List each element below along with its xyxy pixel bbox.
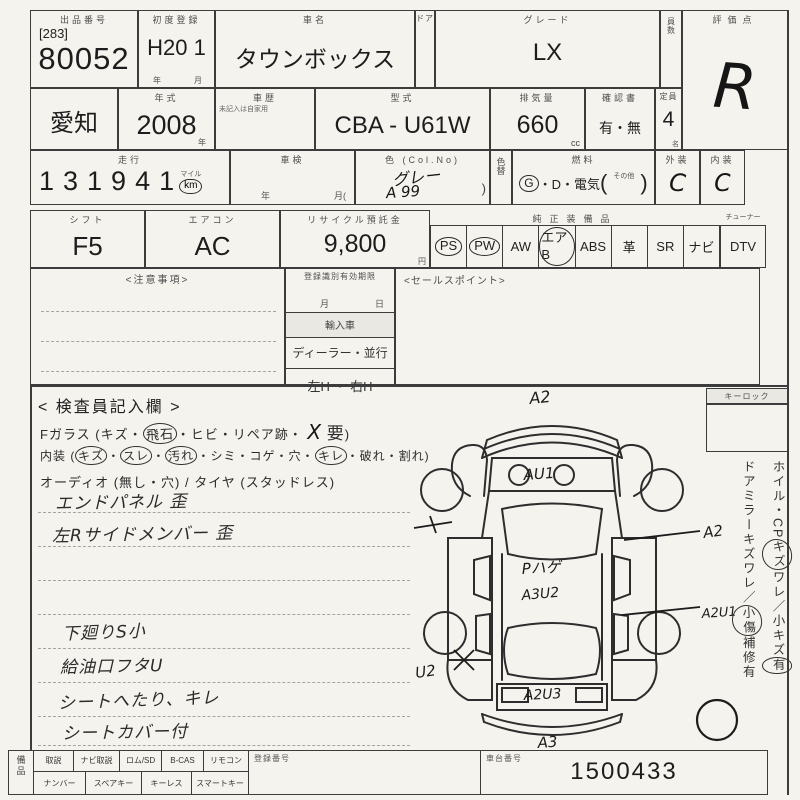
glass-required: 要	[327, 424, 345, 443]
fuel-options: ・D・電気	[539, 174, 600, 193]
sep: ・	[197, 449, 210, 463]
exterior-grade-box: 外装 C	[655, 150, 700, 205]
recycle-fee-unit: 円	[418, 256, 426, 267]
equip-navi-value: ナビ	[688, 237, 714, 256]
fuel-paren-open: (	[600, 170, 607, 196]
accessories-label: 備品	[15, 755, 28, 777]
tuner-value: DTV	[730, 239, 756, 254]
int-shimi: シミ	[210, 449, 236, 463]
model-code-box: 型式 CBA - U61W	[315, 88, 490, 150]
reg-month-unit: 月	[320, 297, 329, 310]
remark-wheel-text: ホイル・CP	[771, 460, 785, 539]
remark-mirror-text: ドアミラー	[741, 460, 755, 533]
sep: ・	[302, 449, 315, 463]
lot-bracket: [283]	[31, 26, 137, 41]
tuner-label: チューナー	[720, 210, 766, 222]
acc-smart-key-label: スマートキー	[196, 778, 244, 789]
glass-hand-x: X	[307, 420, 322, 444]
interior-grade-value: C	[701, 168, 745, 197]
model-year-box: 年式 2008 年	[118, 88, 215, 150]
mileage-unit-mile: マイル	[180, 169, 201, 179]
caution-notes-box: <注意事項>	[30, 268, 285, 385]
shaken-box: 車検 年 月(	[230, 150, 355, 205]
car-name-value: タウンボックス	[216, 40, 414, 74]
hand-marks	[414, 516, 737, 740]
keylock-empty-box	[706, 404, 788, 452]
sep: ・	[347, 449, 360, 463]
mark-left-rear-u2: U2	[414, 661, 437, 682]
right-remarks: ホイル・CPキズワレ／小キズ有 ドアミラーキズワレ／小傷補修有	[732, 460, 792, 752]
sales-point-box: <セールスポイント>	[395, 268, 760, 385]
firstreg-month-unit: 月	[194, 75, 202, 86]
remark-mirror: ドアミラーキズワレ／小傷補修有	[732, 460, 762, 752]
fuel-other-label: その他	[613, 171, 634, 181]
registration-id-label: 登録識別有効期限	[286, 269, 394, 282]
equipment-section: 純正装備品 PS PW AW エアB ABS 革 SR ナビ	[430, 210, 720, 268]
color-change-label: 色替	[495, 157, 508, 175]
capacity-unit: 名	[672, 139, 679, 149]
mark-right-front-a2: A2	[701, 521, 724, 542]
first-registration-value: H20 1	[139, 35, 214, 61]
aircon-value: AC	[146, 231, 279, 262]
first-registration-box: 初度登録 H20 1 年 月	[138, 10, 215, 88]
acc-keyless: キーレス	[142, 772, 192, 795]
lot-number-box: 出品番号 [283] 80052	[30, 10, 138, 88]
caution-notes-label: <注意事項>	[31, 269, 284, 286]
docs-label: 確認書	[586, 89, 654, 104]
recycle-fee-box: リサイクル預託金 9,800 円	[280, 210, 430, 268]
int-koge: コゲ	[249, 449, 275, 463]
equip-ps-value: PS	[435, 237, 462, 255]
remark-mirror-repair: 補修有	[741, 636, 755, 680]
color-box: 色 (Col.No) グレー A 99 )	[355, 150, 490, 205]
sep: ・	[107, 449, 120, 463]
grade-box: グレード LX	[435, 10, 660, 88]
acc-number-plate: ナンバー	[34, 772, 86, 795]
sep: ・	[236, 449, 249, 463]
acc-bcas: B-CAS	[162, 750, 204, 771]
equip-sr-value: SR	[656, 239, 674, 254]
aircon-box: エアコン AC	[145, 210, 280, 268]
shift-box: シフト F5	[30, 210, 145, 268]
equip-navi: ナビ	[684, 226, 719, 267]
tuner-section: チューナー DTV	[720, 210, 766, 268]
sep: ・	[275, 449, 288, 463]
equip-leather: 革	[612, 226, 648, 267]
glass-close: )	[345, 427, 350, 442]
prefecture-value: 愛知	[31, 103, 117, 138]
chassis-number-box: 車台番号 1500433	[480, 750, 768, 795]
door-box: ドア	[415, 10, 435, 88]
accessories-row-1: 取説 ナビ取説 ロム/SD B-CAS リモコン	[34, 750, 248, 772]
remark-wheel: ホイル・CPキズワレ／小キズ有	[762, 460, 792, 752]
docs-box: 確認書 有・無	[585, 88, 655, 150]
interior-grade-box: 内装 C	[700, 150, 745, 205]
registration-id-box: 登録識別有効期限 月 日 輸入車 ディーラー・並行 左H ・ 右H	[285, 268, 395, 385]
car-name-label: 車名	[216, 11, 414, 26]
displacement-value: 660	[491, 111, 584, 140]
mileage-value: 131941	[39, 166, 183, 197]
hand-note-endpanel: エンドパネル 歪	[55, 487, 188, 514]
qty-box: 員数	[660, 10, 682, 88]
fuel-box: 燃料 G・D・電気(その他)	[512, 150, 655, 205]
displacement-unit: cc	[571, 138, 580, 148]
registration-number-box: 登録番号	[248, 750, 480, 795]
exterior-grade-value: C	[655, 168, 699, 198]
glass-repair: リペア跡	[233, 427, 289, 442]
glass-prefix: Fガラス (	[40, 427, 101, 442]
int-yogore-circled: 汚れ	[165, 445, 198, 466]
score-value: R	[681, 46, 790, 126]
int-kire-circled: キレ	[314, 445, 347, 466]
sep: ・	[289, 427, 303, 442]
glass-line: Fガラス (キズ・飛石・ヒビ・リペア跡・ X 要)	[40, 419, 350, 444]
keylock-section: キーロック	[706, 388, 788, 452]
acc-navi-manual: ナビ取説	[74, 750, 120, 771]
import-car-label: 輸入車	[325, 321, 355, 332]
door-label: ドア	[416, 11, 434, 24]
equipment-label: 純正装備品	[430, 210, 720, 225]
sep: ・	[152, 449, 165, 463]
equip-airbag-value: エアB	[539, 227, 574, 266]
sep: ・	[177, 427, 191, 442]
acc-spare-key-label: スペアキー	[94, 778, 133, 789]
sep: ・	[219, 427, 233, 442]
shift-label: シフト	[31, 211, 144, 226]
grade-value: LX	[436, 39, 659, 67]
accessories-label-box: 備品	[8, 750, 34, 795]
displacement-box: 排気量 660 cc	[490, 88, 585, 150]
color-paren: )	[482, 181, 486, 196]
mileage-box: 走行 131941 マイル km	[30, 150, 230, 205]
remark-mirror-kizu: キズ	[741, 533, 755, 562]
interior-line: 内装 (キズ・スレ・汚れ・シミ・コゲ・穴・キレ・破れ・割れ)	[40, 446, 430, 465]
reg-day-unit: 日	[375, 297, 384, 310]
acc-smart-key: スマートキー	[192, 772, 248, 795]
car-history-note: 未記入は自家用	[216, 104, 314, 114]
equip-aw: AW	[503, 226, 539, 267]
recycle-fee-label: リサイクル預託金	[281, 211, 429, 226]
int-kizu-circled: キズ	[75, 445, 108, 466]
registration-number-label: 登録番号	[248, 750, 480, 764]
glass-kizu: キズ	[101, 427, 129, 442]
remark-mirror-kokizu-circled: 小傷	[731, 604, 762, 637]
mark-roof-a3u2: A3U2	[520, 585, 560, 604]
hand-note-seatwear: シートへたり、キレ	[58, 683, 220, 714]
equip-abs-value: ABS	[580, 239, 606, 254]
hand-note-sidemember: 左Rサイドメンバー 歪	[52, 518, 234, 546]
acc-number-plate-label: ナンバー	[44, 778, 76, 789]
equip-abs: ABS	[576, 226, 612, 267]
aircon-label: エアコン	[146, 211, 279, 226]
grade-label: グレード	[436, 11, 659, 26]
model-year-label: 年式	[119, 89, 214, 104]
score-label: 評価点	[683, 11, 787, 26]
equip-leather-value: 革	[623, 237, 636, 256]
interior-grade-label: 内装	[701, 151, 744, 166]
remark-mirror-ware: ワレ／	[741, 562, 755, 606]
shaken-label: 車検	[231, 151, 354, 166]
acc-spare-key: スペアキー	[86, 772, 142, 795]
int-sure-circled: スレ	[120, 445, 153, 466]
glass-hibi: ヒビ	[191, 427, 219, 442]
remark-wheel-ari-circled: 有	[761, 657, 792, 675]
capacity-box: 定員 4 名	[655, 88, 682, 150]
color-code: A 99	[385, 182, 420, 202]
sales-point-label: <セールスポイント>	[396, 269, 759, 287]
capacity-value: 4	[656, 108, 681, 132]
shaken-year-unit: 年	[261, 189, 270, 202]
mark-hood-au1: AU1	[522, 464, 555, 484]
hand-note-underbody: 下廻りS小	[62, 617, 147, 645]
acc-rom-sd-label: ロム/SD	[126, 755, 155, 766]
int-yabure: 破れ	[360, 449, 386, 463]
car-name-box: 車名 タウンボックス	[215, 10, 415, 88]
equip-pw: PW	[467, 226, 503, 267]
lot-number: 80052	[31, 41, 137, 77]
sep: ・	[386, 449, 399, 463]
import-car-row: 輸入車	[286, 313, 394, 338]
dealer-parallel-label: ディーラー・並行	[292, 346, 387, 360]
acc-remote: リモコン	[204, 750, 248, 771]
mileage-unit-km: km	[179, 179, 202, 194]
accessories-row-2: ナンバー スペアキー キーレス スマートキー	[34, 772, 248, 795]
docs-value: 有・無	[586, 118, 654, 138]
equip-airbag: エアB	[539, 226, 575, 267]
acc-navi-manual-label: ナビ取説	[81, 755, 113, 766]
mark-rear-bumper-a3: A3	[536, 733, 558, 750]
remark-wheel-kizu-circled: キズ	[761, 539, 792, 572]
model-code-label: 型式	[316, 89, 489, 104]
auction-sheet: 出品番号 [283] 80052 初度登録 H20 1 年 月 車名 タウンボッ…	[0, 0, 800, 800]
firstreg-year-unit: 年	[153, 75, 161, 86]
mark-front-a2: A2	[527, 388, 551, 408]
model-code-value: CBA - U61W	[316, 112, 489, 140]
glass-tobiishi-circled: 飛石	[142, 422, 177, 445]
capacity-label: 定員	[656, 89, 681, 102]
hand-note-seatcover: シートカバー付	[62, 717, 188, 744]
fuel-gasoline: G	[519, 175, 538, 192]
fuel-paren-close: )	[640, 170, 647, 196]
sep: ・	[129, 427, 143, 442]
tuner-cell: DTV	[720, 225, 766, 268]
displacement-label: 排気量	[491, 89, 584, 104]
acc-manual-label: 取説	[46, 755, 62, 766]
acc-rom-sd: ロム/SD	[120, 750, 162, 771]
dealer-parallel-row: ディーラー・並行	[286, 338, 394, 369]
mark-rear-a2u3: A2U3	[522, 686, 561, 704]
exterior-grade-label: 外装	[656, 151, 699, 166]
fuel-label: 燃料	[513, 151, 654, 166]
equip-sunroof: SR	[648, 226, 684, 267]
hand-note-fuellid: 給油口フタU	[60, 651, 164, 678]
acc-remote-label: リモコン	[210, 755, 242, 766]
model-year-unit: 年	[198, 137, 206, 148]
qty-label: 員数	[666, 15, 677, 35]
recycle-fee-value: 9,800	[281, 230, 429, 259]
acc-bcas-label: B-CAS	[170, 756, 194, 765]
remark-wheel-ware: ワレ／小キズ	[771, 570, 785, 657]
mark-roof-paint: Pハゲ	[521, 558, 563, 578]
mileage-label: 走行	[31, 151, 229, 166]
shift-value: F5	[31, 231, 144, 262]
car-history-box: 車歴 未記入は自家用	[215, 88, 315, 150]
prefecture-box: 愛知	[30, 88, 118, 150]
first-registration-label: 初度登録	[139, 11, 214, 26]
lot-number-label: 出品番号	[31, 11, 137, 26]
score-box: 評価点 R	[682, 10, 788, 150]
equip-aw-value: AW	[511, 239, 531, 254]
interior-prefix: 内装 (	[40, 449, 75, 463]
chassis-number-value: 1500433	[480, 758, 768, 786]
stamp-circle	[697, 700, 737, 740]
shaken-month-unit: 月(	[334, 189, 346, 202]
equip-ps: PS	[431, 226, 467, 267]
keylock-label: キーロック	[707, 389, 787, 402]
acc-keyless-label: キーレス	[151, 778, 183, 789]
int-ana: 穴	[289, 449, 302, 463]
inspector-title: < 検査員記入欄 >	[38, 393, 182, 417]
car-damage-diagram: A2 AU1 A2 Pハゲ A3U2 A2U1 U2 A2U3 A3	[412, 388, 742, 750]
color-change-box: 色替	[490, 150, 512, 205]
acc-manual: 取説	[34, 750, 74, 771]
car-history-label: 車歴	[216, 89, 314, 104]
equip-pw-value: PW	[469, 237, 500, 255]
